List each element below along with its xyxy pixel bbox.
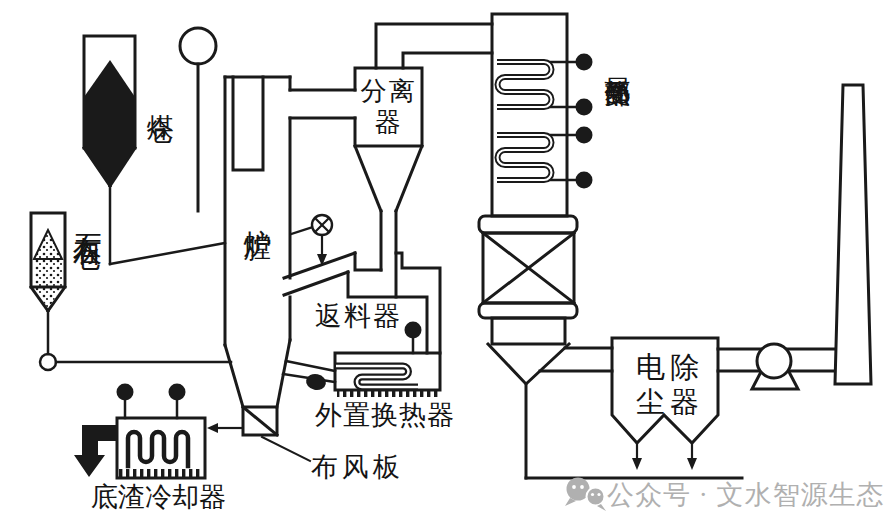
- esp-label: 电除 尘器: [628, 350, 712, 420]
- slag-out-arrow: [74, 425, 117, 477]
- separator-label-line1: 分离: [356, 76, 421, 107]
- furnace-separator-duct: [290, 90, 355, 118]
- coal-bunker-shape: [84, 36, 225, 264]
- limestone-bunker-shape: [31, 213, 231, 370]
- valve-icon: [291, 215, 332, 266]
- cfb-boiler-diagram: 煤仓 石灰石仓 炉膛 分离 器 返料器 外置换热器 布风板 底渣冷却器 尾部受热…: [0, 0, 886, 529]
- air-plate-pointer-line: [262, 437, 310, 461]
- fan-and-chimney: [718, 85, 871, 389]
- bottom-slag-cooler-label: 底渣冷却器: [91, 484, 226, 511]
- air-distribution-plate-label: 布风板: [311, 454, 404, 481]
- esp-label-line1: 电除: [628, 350, 712, 385]
- external-heat-exchanger-shape: [283, 322, 440, 398]
- separator-shape: [355, 24, 492, 297]
- steam-drum-shape: [180, 28, 216, 211]
- watermark-text: 公众号 · 文水智源生态: [607, 477, 885, 513]
- fan-icon: [757, 344, 791, 378]
- furnace-label: 炉膛: [243, 206, 271, 214]
- bottom-slag-cooler-shape: [74, 384, 242, 479]
- backpass-shape: [492, 14, 593, 216]
- separator-label: 分离 器: [356, 76, 421, 138]
- separator-label-line2: 器: [356, 107, 421, 138]
- coal-bunker-label: 煤仓: [146, 93, 173, 99]
- diagram-canvas: [0, 0, 886, 529]
- chimney-shape: [835, 85, 871, 384]
- return-feeder-label: 返料器: [315, 303, 402, 330]
- esp-label-line2: 尘器: [628, 385, 712, 420]
- external-heat-exchanger-label: 外置换热器: [315, 402, 455, 429]
- furnace-shape: [225, 77, 290, 435]
- limestone-bunker-label: 石灰石仓: [73, 211, 102, 223]
- tail-heating-surface-label: 尾部受热面: [604, 57, 630, 62]
- wechat-icon: [565, 478, 606, 512]
